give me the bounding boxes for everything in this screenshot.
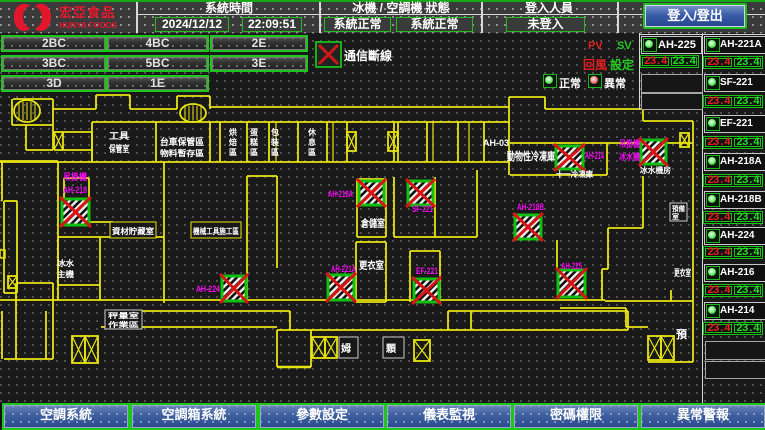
svg-text:更衣室: 更衣室 (674, 267, 691, 278)
svg-text:物料暫存區: 物料暫存區 (160, 148, 204, 158)
svg-text:息: 息 (308, 137, 316, 147)
svg-text:AH-218A: AH-218A (328, 189, 353, 199)
svg-text:吊掛機: 吊掛機 (619, 138, 640, 149)
svg-text:台車保管區: 台車保管區 (160, 136, 204, 147)
svg-text:SF-221: SF-221 (412, 204, 433, 214)
svg-text:包: 包 (270, 127, 279, 137)
svg-text:主機: 主機 (57, 269, 74, 279)
svg-text:冰水機: 冰水機 (619, 151, 640, 162)
svg-text:資材貯藏室: 資材貯藏室 (112, 226, 154, 236)
svg-text:焙: 焙 (228, 137, 237, 147)
svg-text:AH-221A: AH-221A (331, 264, 356, 274)
svg-text:十一冷凍庫: 十一冷凍庫 (556, 169, 593, 179)
svg-text:室: 室 (672, 212, 679, 221)
svg-text:工具: 工具 (109, 131, 129, 141)
svg-text:機械工具施工區: 機械工具施工區 (193, 226, 239, 236)
svg-text:AH-214: AH-214 (585, 150, 604, 162)
svg-text:區: 區 (229, 148, 237, 157)
svg-text:預: 預 (676, 327, 688, 341)
svg-text:裝: 裝 (270, 137, 280, 147)
svg-text:保管室: 保管室 (108, 143, 129, 154)
svg-text:冰水機房: 冰水機房 (640, 165, 671, 175)
svg-text:區: 區 (250, 148, 258, 157)
svg-text:更衣室: 更衣室 (359, 259, 384, 272)
svg-text:預備: 預備 (672, 204, 685, 213)
svg-text:姆: 姆 (340, 342, 351, 355)
svg-text:倉儲室: 倉儲室 (360, 217, 385, 230)
svg-text:AH-225: AH-225 (561, 261, 582, 271)
svg-text:顆: 顆 (386, 343, 397, 355)
svg-text:AH-218: AH-218 (63, 185, 87, 195)
svg-text:AH-224: AH-224 (196, 284, 220, 294)
svg-text:烘: 烘 (229, 127, 237, 137)
svg-text:休: 休 (307, 127, 317, 137)
svg-text:區: 區 (308, 148, 316, 157)
svg-text:吊掛機: 吊掛機 (63, 171, 87, 182)
svg-text:秤量室: 秤量室 (108, 311, 139, 320)
svg-text:蛋: 蛋 (250, 128, 258, 137)
svg-text:糕: 糕 (249, 137, 258, 147)
svg-text:動物性冷凍庫: 動物性冷凍庫 (507, 149, 555, 163)
svg-text:AH-218B: AH-218B (517, 202, 544, 212)
svg-text:AH-03: AH-03 (483, 138, 509, 148)
svg-text:EF-221: EF-221 (416, 266, 438, 276)
svg-text:作業區: 作業區 (108, 320, 139, 329)
svg-text:冰水: 冰水 (57, 258, 75, 268)
svg-text:區: 區 (271, 148, 279, 157)
